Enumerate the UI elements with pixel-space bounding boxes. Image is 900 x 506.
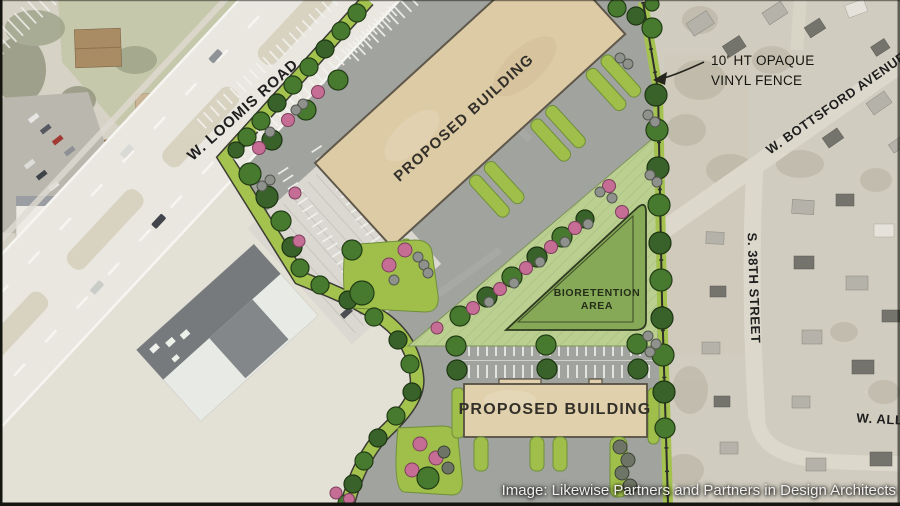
bioretention-label: BIORETENTION AREA [554,287,641,313]
fence-annotation-line1: 10' HT OPAQUE [711,51,815,71]
street-label-w-all: W. ALL [856,410,900,427]
existing-building-brown-1 [74,28,121,68]
bioretention-label-line2: AREA [554,300,641,313]
bioretention-label-line1: BIORETENTION [554,287,641,300]
fence-annotation: 10' HT OPAQUE VINYL FENCE [711,51,815,90]
image-credit-caption: Image: Likewise Partners and Partners in… [502,482,896,499]
street-label-text: W. ALL [856,410,900,427]
site-plan-rendering: W. LOOMIS ROAD W. BOTTSFORD AVENUE S. 38… [0,0,900,506]
building-label-text: PROPOSED BUILDING [459,401,652,418]
proposed-building-south-label: PROPOSED BUILDING [459,401,652,419]
fence-annotation-line2: VINYL FENCE [711,71,815,91]
